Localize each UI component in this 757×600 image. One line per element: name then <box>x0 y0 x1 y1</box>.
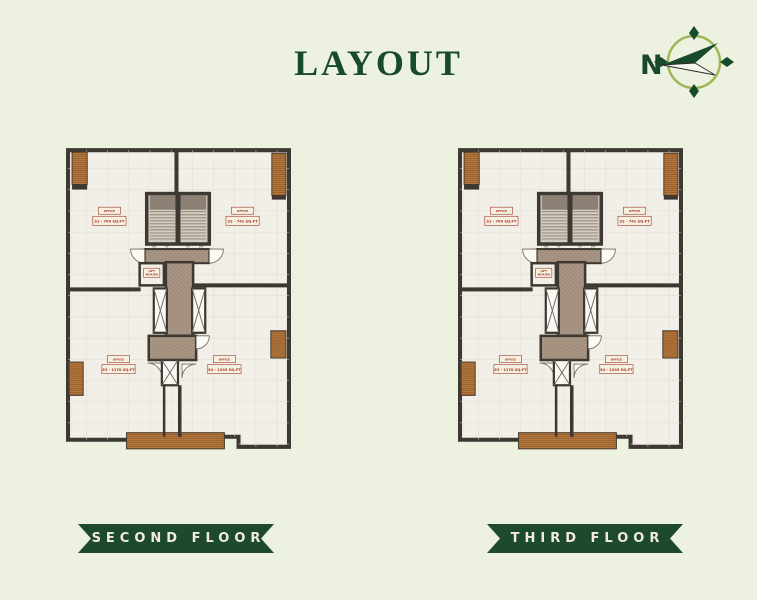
north-compass: N <box>636 22 738 102</box>
floor-plan-third <box>457 147 684 452</box>
third-floor-banner-label: THIRD FLOOR <box>506 531 665 546</box>
second-floor-banner-label: SECOND FLOOR <box>87 531 266 546</box>
layout-page: DN UP UP DN <box>0 0 757 600</box>
floor-plan-second <box>65 147 292 452</box>
floor-plan-graphic <box>460 150 681 449</box>
third-floor-banner: THIRD FLOOR <box>487 524 683 553</box>
floor-plan-graphic <box>68 150 289 449</box>
second-floor-banner: SECOND FLOOR <box>78 524 274 553</box>
